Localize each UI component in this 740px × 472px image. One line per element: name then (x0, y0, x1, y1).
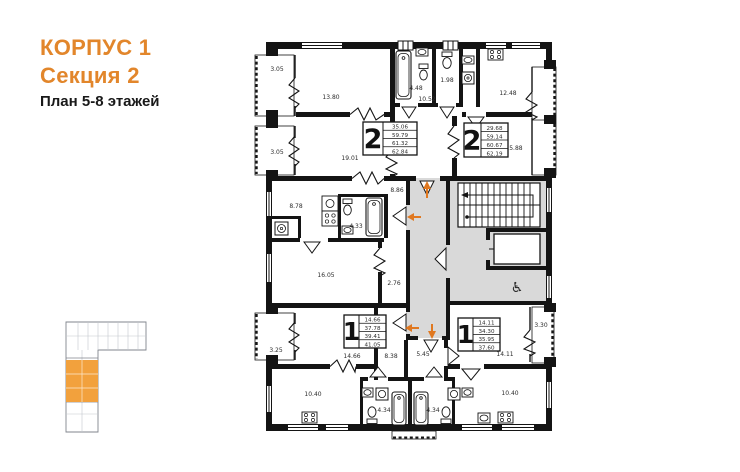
building-overview-map (66, 322, 146, 432)
room-label: 8.38 (384, 353, 398, 360)
apartment-rooms-count: 2 (463, 126, 482, 157)
apartment-area: 14.11 (478, 321, 494, 327)
bathtub-icon (366, 198, 382, 236)
toilet-icon (367, 407, 377, 424)
room-label: 10.40 (501, 390, 518, 397)
room-label: 8.78 (289, 203, 303, 210)
apartment-area: 62.84 (392, 149, 408, 155)
room-label: 14.11 (496, 351, 513, 358)
sink-icon (462, 388, 473, 397)
room-label: 3.05 (270, 66, 284, 73)
apartment-card-1-right[interactable]: 1 14.11 34.30 35.95 37.60 (457, 318, 500, 351)
page: { "header": { "building": "КОРПУС 1", "s… (0, 0, 740, 472)
room-label: 4.34 (377, 407, 391, 414)
stove-icon (322, 211, 338, 226)
apartment-card-1-left[interactable]: 1 14.66 37.78 39.41 41.05 (343, 315, 386, 348)
room-label: 3.05 (270, 149, 284, 156)
apartment-area: 61.32 (392, 141, 408, 147)
sink-icon (416, 48, 428, 56)
apartment-rooms-count: 1 (343, 317, 360, 346)
sink-icon (462, 56, 474, 64)
toilet-icon (441, 407, 451, 424)
elevator (489, 234, 540, 264)
apartment-area: 35.06 (392, 125, 408, 131)
washing-machine-icon (275, 222, 288, 235)
sink-icon (362, 388, 373, 397)
apartment-area: 41.05 (364, 342, 380, 348)
room-label: 14.66 (343, 353, 360, 360)
apartment-area: 62.19 (486, 151, 502, 157)
staircase (458, 183, 540, 227)
room-label: 3.30 (534, 322, 548, 329)
room-label: 19.01 (341, 155, 358, 162)
washing-machine-icon (376, 388, 388, 400)
stove-icon (498, 412, 513, 423)
room-label: 1.98 (440, 77, 454, 84)
apartment-area: 14.66 (364, 318, 380, 324)
room-label: 3.25 (269, 347, 283, 354)
wheelchair-icon: ♿ (511, 280, 524, 296)
apartment-area: 35.95 (478, 337, 494, 343)
apartment-area: 37.60 (478, 345, 494, 351)
apartment-area: 37.78 (364, 326, 380, 332)
room-label: 8.86 (390, 187, 404, 194)
bathtub-icon (392, 392, 406, 425)
washing-machine-icon (462, 72, 474, 84)
toilet-icon (442, 52, 452, 68)
room-label: 12.48 (499, 90, 516, 97)
apartment-card-2-right[interactable]: 2 29.68 59.14 60.67 62.19 (463, 123, 508, 157)
washing-machine-icon (448, 388, 460, 400)
apartment-area: 34.30 (478, 329, 494, 335)
apartment-rooms-count: 1 (457, 320, 474, 349)
room-label: 10.52 (418, 96, 435, 103)
stove-icon (488, 49, 503, 60)
apartment-area: 39.41 (364, 334, 380, 340)
room-label: 10.40 (304, 391, 321, 398)
apartment-rooms-count: 2 (364, 124, 383, 155)
room-label: 2.76 (387, 280, 401, 287)
room-label: 13.80 (322, 94, 339, 101)
room-label: 4.48 (409, 85, 423, 92)
room-label: 4.33 (349, 223, 363, 230)
toilet-icon (343, 199, 352, 215)
apartment-area: 60.67 (486, 143, 502, 149)
apartment-card-2-left[interactable]: 2 35.06 59.79 61.32 62.84 (363, 122, 417, 155)
room-label: 4.34 (426, 407, 440, 414)
room-label: 16.05 (317, 272, 334, 279)
toilet-icon (419, 64, 428, 80)
sink-icon (478, 413, 490, 423)
floor-plan: ♿ (0, 0, 740, 472)
apartment-area: 29.68 (486, 126, 502, 132)
stove-icon (302, 412, 317, 423)
room-label: 5.45 (416, 351, 430, 358)
apartment-area: 59.14 (486, 134, 502, 140)
apartment-area: 59.79 (392, 133, 408, 139)
kitchen-sink-icon (322, 196, 338, 211)
